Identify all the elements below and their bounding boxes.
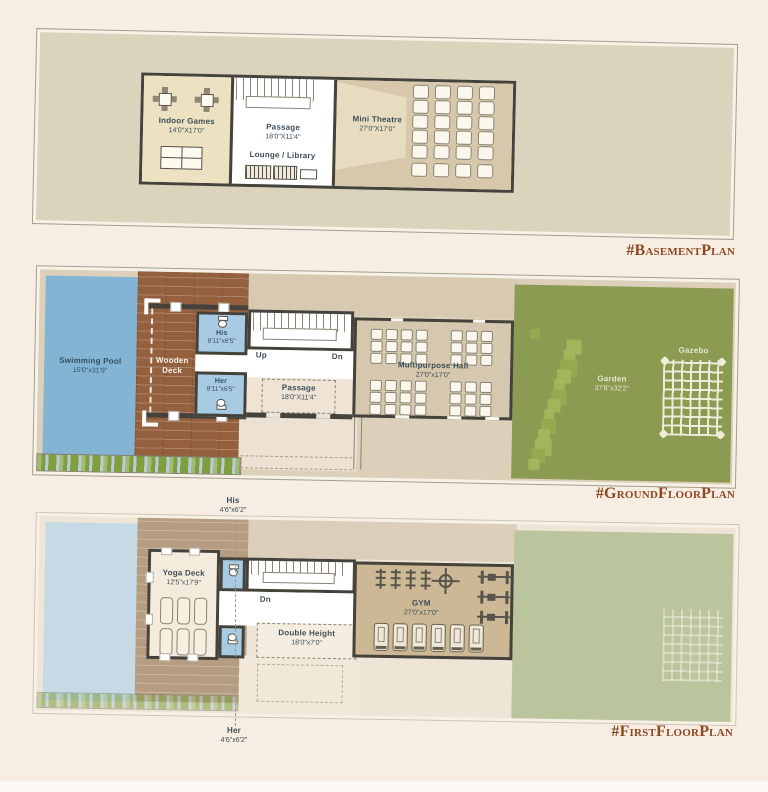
- seat-icon: [478, 101, 494, 115]
- theatre-seats: [411, 85, 507, 162]
- yoga-mats: [159, 597, 206, 656]
- first-top-strip: [248, 520, 517, 563]
- basement-building: Indoor Games 14'0"X17'0" Passage 18'0"X1…: [139, 72, 516, 192]
- games-table-icon: [151, 86, 178, 113]
- chair-icon: [416, 330, 428, 341]
- first-plot: Yoga Deck 12'5"x17'9" Dn Double Heigh: [36, 516, 735, 722]
- chair-icon: [401, 329, 413, 340]
- chair-icon: [414, 405, 426, 416]
- ground-stairs-room: [248, 309, 355, 351]
- hedge-strip: [36, 453, 241, 475]
- her-callout: Her 4'6"x6'2": [204, 726, 264, 745]
- her-callout-dims: 4'6"x6'2": [204, 736, 264, 745]
- stepping-stone: [528, 459, 539, 470]
- seat-icon: [434, 130, 450, 144]
- bookshelf-icon: [273, 165, 297, 180]
- seat-icon: [411, 163, 427, 177]
- garden: Garden 37'8"x32'2" Gazebo: [511, 284, 734, 482]
- gazebo-post-icon: [659, 429, 669, 439]
- seat-icon: [434, 100, 450, 114]
- tread-icon: [449, 624, 464, 652]
- chair-icon: [385, 392, 397, 403]
- first-stairs-room: [245, 558, 356, 594]
- chair-icon: [371, 329, 383, 340]
- toilet-her-first: [218, 625, 245, 658]
- chair-icon: [414, 393, 426, 404]
- chair-icon: [400, 380, 412, 391]
- seat-icon: [455, 164, 471, 178]
- seat-icon: [455, 146, 471, 160]
- seat-icon: [477, 146, 493, 160]
- barbell-icon: [405, 569, 417, 589]
- wall-pilaster: [168, 411, 179, 421]
- chair-icon: [415, 381, 427, 392]
- barbell-icon: [375, 569, 387, 589]
- wall-pilaster: [159, 653, 170, 661]
- ground-passage-dims: 18'0"X11'4": [262, 393, 334, 403]
- gym-barbells: [374, 569, 434, 592]
- toilet-his: His 8'11"x6'5": [195, 311, 248, 355]
- tread-icon: [392, 623, 407, 651]
- chair-icon: [370, 341, 382, 352]
- toilet-icon: [217, 316, 227, 328]
- seat-icon: [478, 116, 494, 130]
- toilet-icon: [215, 398, 225, 410]
- mat-icon: [177, 597, 190, 624]
- floor-plans-page: { "hashtags": { "basement": "#BasementPl…: [0, 0, 768, 792]
- chair-icon: [465, 343, 477, 354]
- hashtag-first: #FirstFloorPlan: [611, 723, 733, 741]
- stepping-stone: [530, 329, 540, 339]
- door-gap: [316, 414, 330, 419]
- compound-wall: [353, 417, 362, 469]
- door-gap: [266, 413, 280, 418]
- games-table-icon: [193, 87, 220, 114]
- hashtag-ground: #GroundFloorPlan: [596, 485, 735, 503]
- barbell-icon: [420, 570, 432, 590]
- his-callout-dims: 4'6"x6'2": [203, 506, 263, 515]
- tread-icon: [468, 624, 483, 652]
- tread-icon: [373, 623, 388, 651]
- pool-dims: 15'0"x31'9": [44, 366, 136, 377]
- dn-label-first: Dn: [255, 595, 275, 606]
- gym-machine-icon: [439, 574, 453, 588]
- chair-icon: [466, 331, 478, 342]
- mat-icon: [160, 597, 173, 624]
- multipurpose-hall: Multipurpose Hall 27'0"x17'0": [352, 317, 514, 420]
- chair-icon: [385, 380, 397, 391]
- seat-icon: [413, 85, 429, 99]
- seat-icon: [435, 85, 451, 99]
- chair-icon: [464, 406, 476, 417]
- seat-icon: [412, 130, 428, 144]
- gazebo-post-icon: [716, 430, 726, 440]
- bookshelf-icon: [245, 165, 271, 180]
- walkway-dashed: [240, 455, 352, 470]
- barbell-icon: [390, 569, 402, 589]
- chair-icon: [464, 394, 476, 405]
- wall-pilaster: [161, 547, 172, 555]
- mini-theatre-dims: 27'0"X17'0": [338, 124, 416, 135]
- seat-icon: [456, 101, 472, 115]
- wall-pilaster: [189, 548, 200, 556]
- chair-icon: [385, 341, 397, 352]
- wall-pilaster: [146, 572, 154, 583]
- theatre-seats-back: [411, 163, 505, 179]
- chair-icon: [399, 392, 411, 403]
- mat-icon: [176, 628, 189, 655]
- chair-icon: [451, 330, 463, 341]
- wall-pilaster: [145, 614, 153, 625]
- lounge-library-label: Lounge / Library: [232, 150, 332, 163]
- pergola-bracket: [142, 410, 158, 426]
- toilet-her: Her 8'11"x6'5": [194, 371, 247, 417]
- room-indoor-games: Indoor Games 14'0"X17'0": [142, 76, 234, 184]
- basement-plot: Indoor Games 14'0"X17'0" Passage 18'0"X1…: [36, 32, 734, 236]
- his-callout-label: His: [203, 496, 263, 506]
- chair-icon: [479, 406, 491, 417]
- seat-icon: [433, 163, 449, 177]
- chair-icon: [480, 343, 492, 354]
- double-height: Double Height 18'0"x7'0": [256, 623, 357, 660]
- chair-icon: [369, 404, 381, 415]
- chair-icon: [449, 393, 461, 404]
- swimming-pool: Swimming Pool 15'0"x31'9": [42, 275, 137, 457]
- wall-pilaster: [187, 654, 198, 662]
- chair-icon: [450, 381, 462, 392]
- chair-icon: [399, 404, 411, 415]
- indoor-games-dims: 14'0"X17'0": [143, 126, 230, 137]
- gazebo: [662, 359, 723, 436]
- stairs-landing: [263, 328, 337, 341]
- double-height-dims: 18'0"x7'0": [257, 638, 355, 649]
- seat-icon: [478, 131, 494, 145]
- yoga-deck-dims: 12'5"x17'9": [151, 578, 217, 588]
- first-corridor: Dn: [219, 591, 356, 627]
- door-gap: [447, 416, 461, 419]
- first-porch: [238, 655, 361, 715]
- mat-icon: [193, 629, 206, 656]
- garden-below: [511, 530, 733, 722]
- seat-icon: [433, 145, 449, 159]
- gym-room: GYM 27'0"x17'0": [352, 561, 514, 660]
- seat-icon: [479, 86, 495, 100]
- library-table-icon: [300, 169, 317, 179]
- her-dims: 8'11"x6'5": [198, 385, 244, 394]
- room-mini-theatre: Mini Theatre 27'0"X17'0": [332, 80, 513, 190]
- her-callout-label: Her: [204, 726, 264, 736]
- mat-icon: [194, 598, 207, 625]
- lat-icon: [481, 571, 509, 584]
- chair-icon: [384, 404, 396, 415]
- ground-floor-panel: Swimming Pool 15'0"x31'9" Garden 37'8"x3…: [32, 265, 740, 488]
- gazebo-label: Gazebo: [663, 345, 723, 357]
- porch-dashed: [257, 664, 344, 703]
- basement-stairs-landing: [246, 96, 311, 109]
- chair-icon: [465, 382, 477, 393]
- hedge-below: [36, 692, 238, 712]
- door-gap: [473, 320, 485, 323]
- seat-icon: [411, 145, 427, 159]
- chair-icon: [479, 394, 491, 405]
- seat-icon: [456, 131, 472, 145]
- tread-icon: [430, 624, 445, 652]
- stepping-stone: [544, 409, 554, 419]
- chair-icon: [400, 341, 412, 352]
- chair-icon: [370, 380, 382, 391]
- gazebo-post-icon: [660, 356, 670, 366]
- ground-plot: Swimming Pool 15'0"x31'9" Garden 37'8"x3…: [36, 269, 736, 484]
- basement-passage-dims: 18'0"X11'4": [233, 132, 333, 143]
- seat-icon: [434, 115, 450, 129]
- toilet-his-first: [219, 557, 246, 591]
- ground-corridor: Up Dn: [247, 349, 354, 379]
- gym-dims: 27'0"x17'0": [356, 608, 486, 619]
- door-gap: [391, 318, 403, 321]
- yoga-deck-room: Yoga Deck 12'5"x17'9": [146, 549, 220, 660]
- foosball-table-icon: [160, 146, 203, 170]
- dn-label: Dn: [327, 352, 347, 363]
- chair-icon: [450, 342, 462, 353]
- seat-icon: [457, 86, 473, 100]
- hashtag-basement: #BasementPlan: [626, 242, 735, 260]
- door-gap: [395, 415, 409, 418]
- toilet-icon: [228, 564, 238, 576]
- gazebo-below: [662, 609, 723, 682]
- toilet-leader-line: [235, 520, 236, 726]
- tread-icon: [411, 623, 426, 651]
- seat-icon: [456, 116, 472, 130]
- chair-icon: [370, 392, 382, 403]
- chair-icon: [449, 405, 461, 416]
- chair-icon: [386, 329, 398, 340]
- deck-opening: [195, 354, 253, 372]
- his-dims: 8'11"x6'5": [199, 337, 245, 346]
- mat-icon: [159, 628, 172, 655]
- wall-pilaster: [170, 302, 181, 312]
- chair-icon: [481, 331, 493, 342]
- first-floor-panel: Yoga Deck 12'5"x17'9" Dn Double Heigh: [32, 512, 739, 726]
- stairs-landing: [263, 572, 335, 584]
- bottom-band: [0, 781, 768, 792]
- gazebo-post-icon: [717, 357, 727, 367]
- seat-icon: [477, 164, 493, 178]
- seat-icon: [412, 115, 428, 129]
- gym-treadmills: [373, 623, 493, 653]
- pool-below: [43, 522, 138, 702]
- ground-passage: Passage 18'0"X11'4": [261, 379, 336, 414]
- up-label: Up: [251, 350, 271, 361]
- basement-panel: Indoor Games 14'0"X17'0" Passage 18'0"X1…: [32, 28, 738, 240]
- door-gap: [485, 417, 499, 420]
- chair-icon: [415, 342, 427, 353]
- pergola-bracket: [144, 298, 160, 314]
- chair-icon: [480, 382, 492, 393]
- seat-icon: [412, 100, 428, 114]
- his-callout: His 4'6"x6'2": [203, 496, 263, 515]
